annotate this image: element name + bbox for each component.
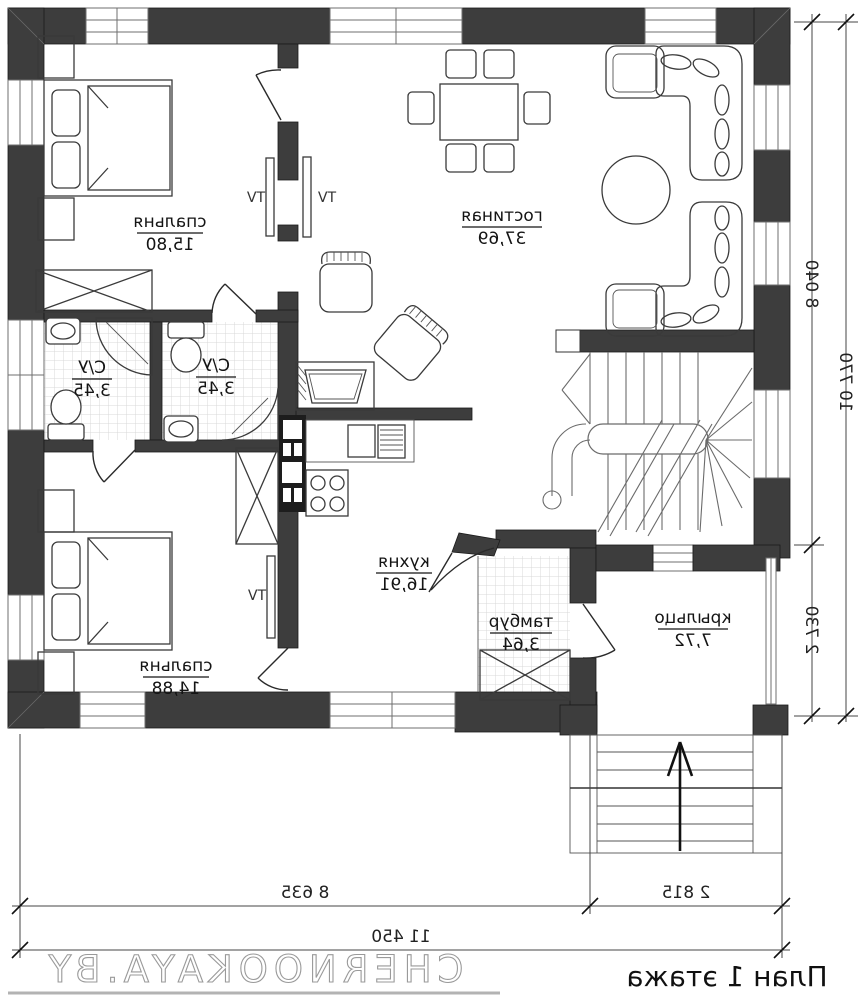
window-icon: [330, 8, 462, 44]
coffee-table-icon: [602, 156, 670, 224]
room-area: 3,45: [197, 379, 235, 399]
room-label-living-room: гостиная 37,69: [461, 206, 542, 249]
window-icon: [80, 692, 145, 728]
window-icon: [653, 545, 693, 571]
door-bathroom-1: [93, 450, 135, 482]
room-name: спальня: [133, 212, 206, 232]
wardrobe-icon: [236, 448, 278, 544]
window-icon: [8, 595, 44, 660]
entry-steps: [570, 735, 782, 853]
window-icon: [330, 692, 455, 728]
dimension-right-inner-top: 8 040: [801, 260, 821, 309]
staircase: [543, 352, 752, 536]
kitchen-sink-icon: [296, 362, 374, 410]
toilet-icon: [168, 322, 204, 372]
vent-shaft: [279, 415, 306, 512]
room-label-bedroom-1: спальня 15,80: [133, 212, 206, 255]
wardrobe-icon: [36, 270, 152, 312]
room-area: 3,64: [502, 635, 540, 655]
floor-plan-drawing: спальня 15,80 гостиная 37,69 С/У 3,45 С/…: [0, 0, 864, 1000]
tv-panel-icon: [267, 556, 275, 638]
dimension-bottom-right: 2 815: [662, 883, 711, 903]
room-name: тамбур: [489, 612, 553, 632]
armchair-icon: [371, 302, 452, 384]
dimension-right-inner-bottom: 2 730: [801, 606, 821, 655]
door-bedroom-2: [258, 648, 288, 690]
dimension-lines-right: 8 040 2 730 10 770: [794, 14, 858, 724]
window-icon: [8, 320, 44, 430]
room-area: 37,69: [478, 229, 527, 249]
window-icon: [8, 80, 44, 145]
sink-icon: [46, 318, 80, 344]
room-label-kitchen: кухня 16,91: [376, 552, 432, 595]
porch-glazing: [766, 558, 776, 704]
window-icon: [754, 222, 790, 285]
bedroom-1-furniture: [36, 36, 311, 312]
stove-icon: [306, 470, 348, 516]
dimension-right-outer: 10 770: [835, 352, 855, 411]
sink-icon: [164, 416, 198, 442]
room-area: 16,91: [380, 575, 429, 595]
dining-table-icon: [408, 50, 550, 172]
room-name: С/У: [201, 356, 230, 376]
window-icon: [86, 8, 148, 44]
armchair-icon: [320, 252, 372, 312]
door-bedroom-1: [256, 70, 281, 120]
watermark-text: CHERNOOKAYA.BY: [43, 948, 464, 991]
sofa-icon: [606, 46, 742, 180]
tv-panel-icon: [303, 157, 311, 237]
dimension-lines-bottom: 8 635 2 815 11 450: [12, 734, 790, 958]
room-name: спальня: [139, 656, 212, 676]
tv-panel-icon: [266, 158, 274, 236]
tv-label: TV: [248, 588, 268, 604]
room-name: крыльцо: [654, 608, 731, 628]
footer: CHERNOOKAYA.BY План 1 этажа: [8, 948, 828, 993]
room-area: 15,80: [146, 235, 195, 255]
window-icon: [754, 85, 790, 150]
dimension-bottom-left: 8 635: [281, 883, 330, 903]
door-bathroom-2: [212, 284, 256, 314]
floor-plan-page: спальня 15,80 гостиная 37,69 С/У 3,45 С/…: [0, 0, 864, 1000]
room-area: 14,88: [152, 679, 201, 699]
kitchen-counter: [306, 420, 414, 462]
room-area: 3,45: [73, 381, 111, 401]
room-label-porch: крыльцо 7,72: [654, 608, 731, 651]
window-icon: [645, 8, 716, 44]
room-area: 7,72: [674, 631, 712, 651]
plan-title: План 1 этажа: [626, 960, 827, 993]
room-name: кухня: [378, 552, 430, 572]
tv-label: TV: [318, 190, 338, 206]
bed-icon: [44, 532, 172, 650]
direction-arrow-icon: [668, 742, 692, 851]
room-name: С/У: [77, 358, 106, 378]
door-tambour-porch: [583, 604, 615, 658]
kitchen-fixtures: [296, 362, 414, 516]
window-icon: [754, 390, 790, 478]
tv-label: TV: [247, 190, 267, 206]
dimension-bottom-total: 11 450: [371, 927, 430, 947]
room-name: гостиная: [461, 206, 542, 226]
bed-icon: [44, 80, 172, 196]
